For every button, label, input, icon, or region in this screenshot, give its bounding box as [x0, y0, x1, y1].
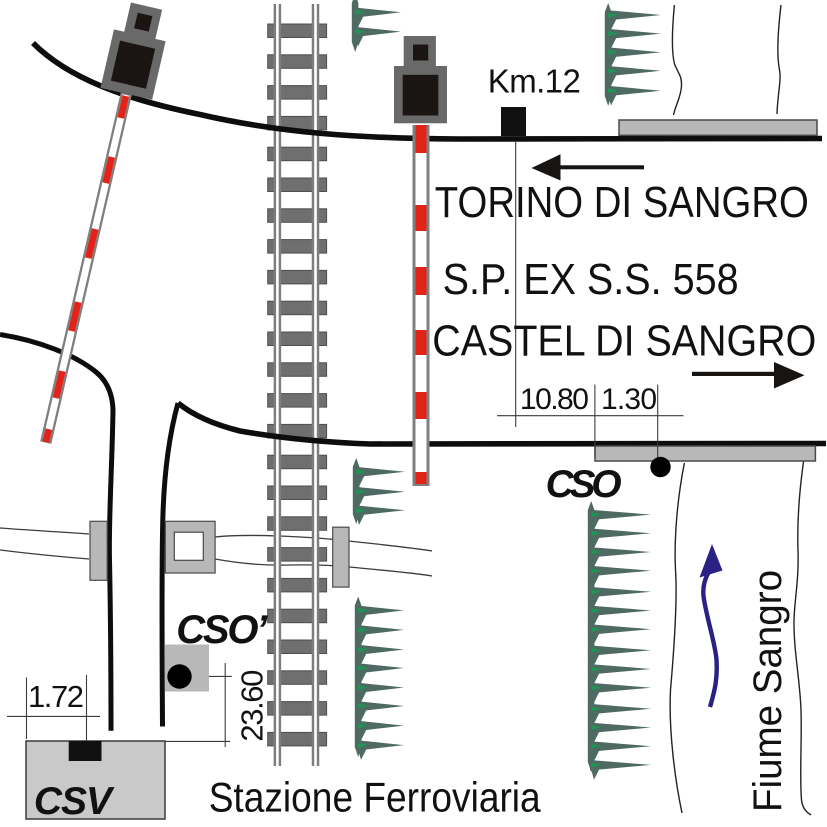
svg-text:Fiume Sangro: Fiume Sangro: [746, 570, 790, 812]
svg-text:1.30: 1.30: [601, 383, 657, 416]
svg-text:Stazione Ferroviaria: Stazione Ferroviaria: [209, 773, 542, 820]
svg-text:S.P. EX S.S. 558: S.P. EX S.S. 558: [443, 255, 739, 304]
svg-text:CSO’: CSO’: [176, 608, 268, 652]
svg-text:CSO: CSO: [546, 463, 622, 506]
svg-text:1.72: 1.72: [28, 679, 84, 714]
svg-text:TORINO DI SANGRO: TORINO DI SANGRO: [435, 178, 809, 227]
svg-text:Km.12: Km.12: [488, 63, 581, 100]
svg-text:CSV: CSV: [34, 780, 115, 823]
svg-text:CASTEL DI SANGRO: CASTEL DI SANGRO: [432, 317, 816, 366]
svg-text:23.60: 23.60: [235, 670, 270, 742]
svg-text:10.80: 10.80: [520, 383, 589, 416]
